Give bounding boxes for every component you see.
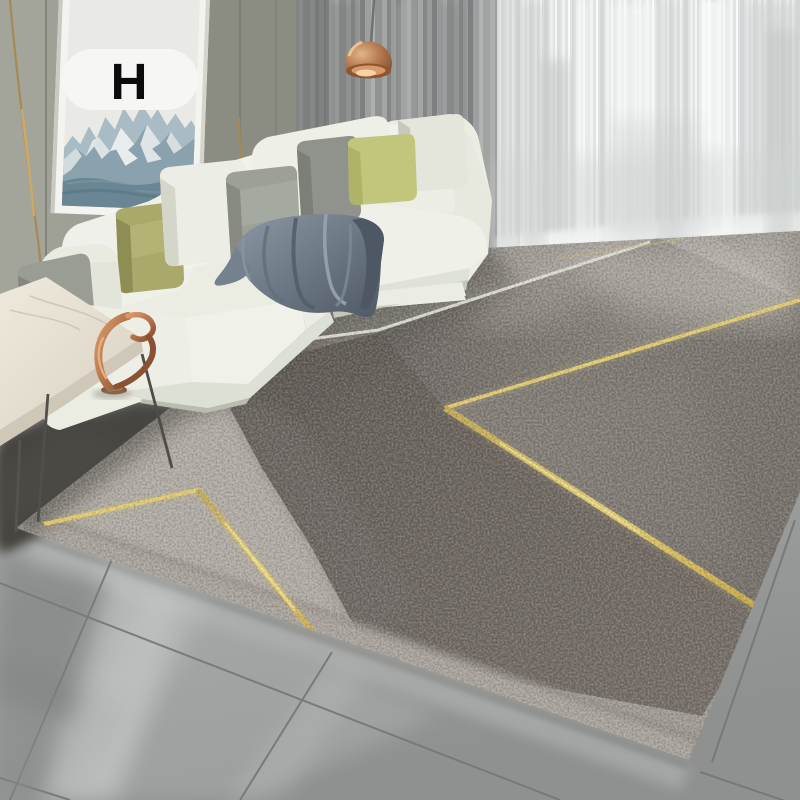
svg-text:H: H	[111, 53, 148, 110]
